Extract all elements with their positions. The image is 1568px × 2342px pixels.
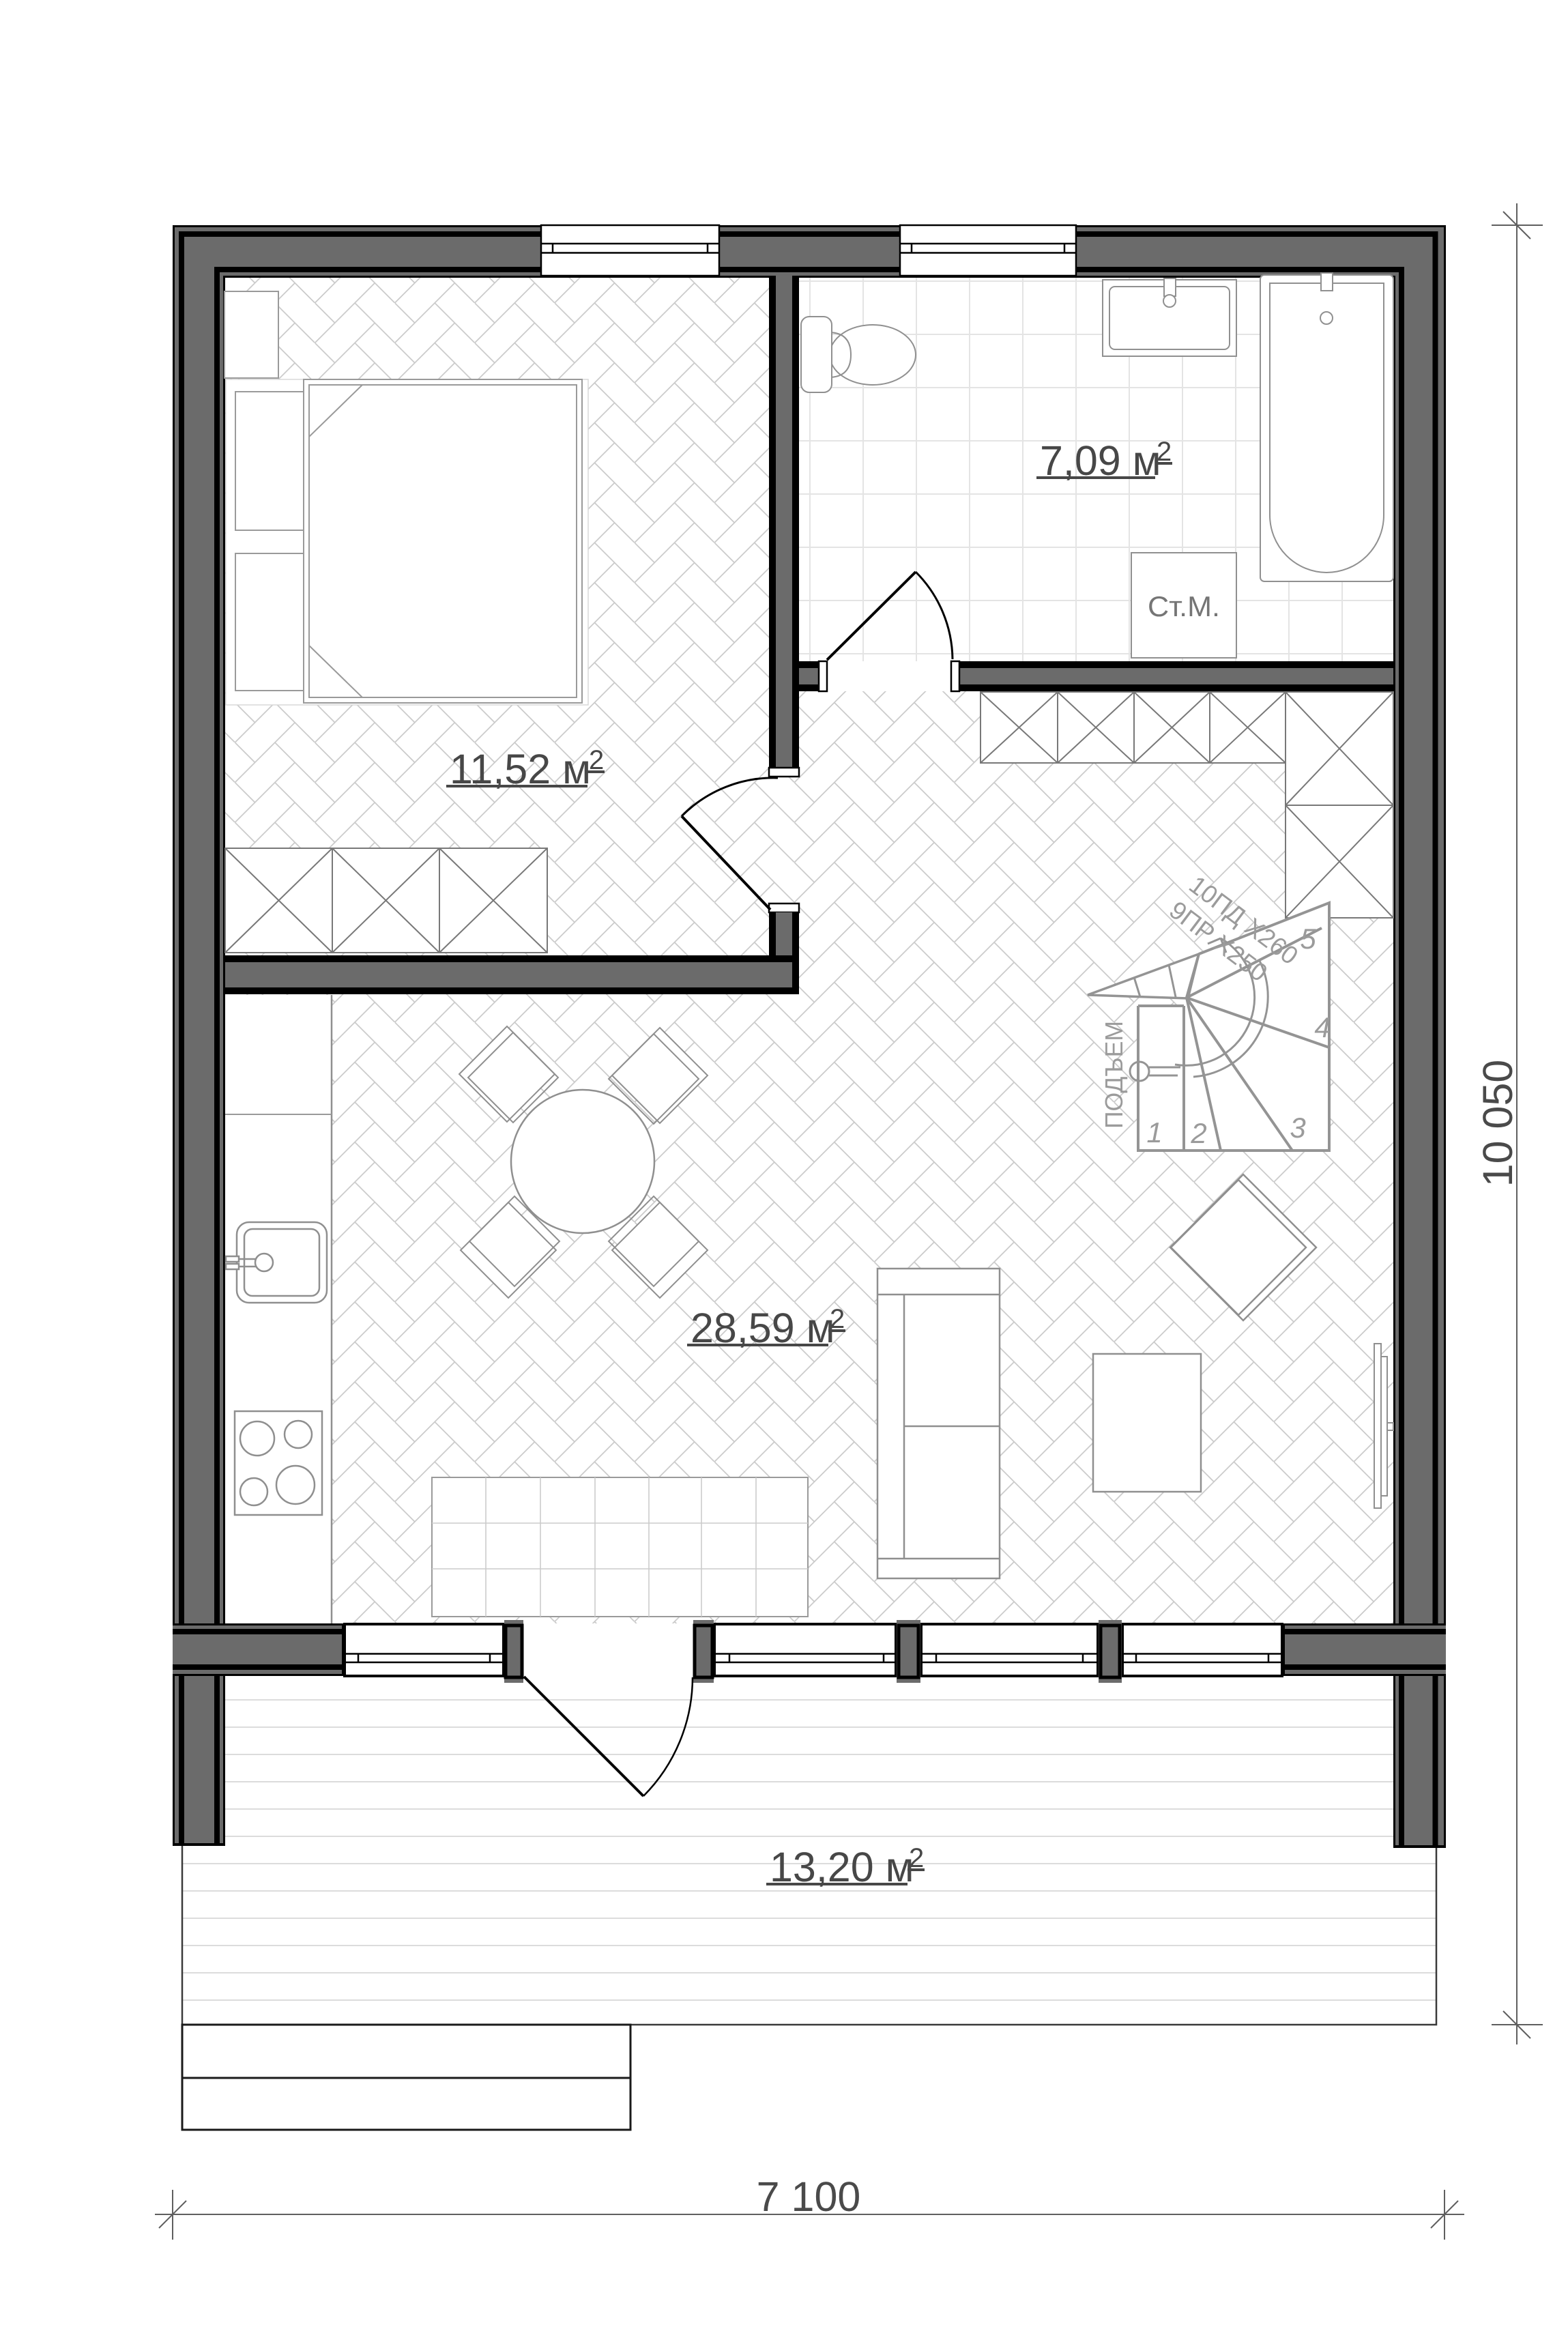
svg-text:10 050: 10 050 [1475, 1060, 1521, 1187]
svg-text:ПОДЪЕМ: ПОДЪЕМ [1100, 1021, 1128, 1129]
svg-text:5: 5 [1300, 923, 1316, 955]
svg-text:1: 1 [1146, 1116, 1162, 1148]
svg-text:Ст.М.: Ст.М. [1148, 590, 1220, 622]
svg-text:3: 3 [1290, 1112, 1305, 1144]
svg-text:2: 2 [1190, 1117, 1206, 1149]
svg-text:7 100: 7 100 [757, 2173, 861, 2220]
svg-text:4: 4 [1314, 1011, 1330, 1043]
